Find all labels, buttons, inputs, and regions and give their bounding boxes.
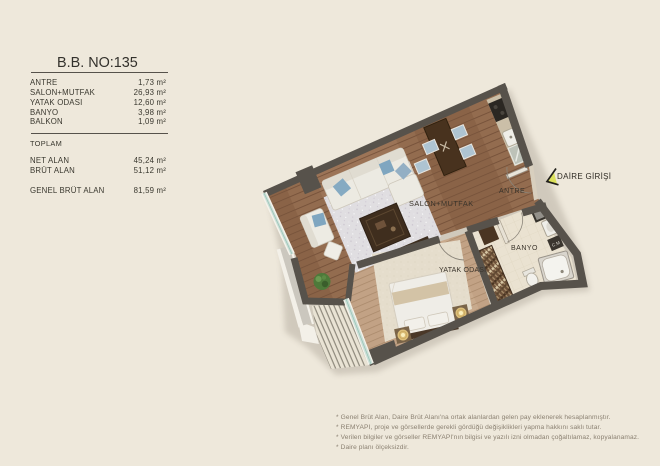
svg-text:DAİRE GİRİŞİ: DAİRE GİRİŞİ [557, 172, 611, 181]
svg-text:YATAK ODASI: YATAK ODASI [439, 267, 486, 274]
svg-text:ANTRE: ANTRE [499, 188, 525, 195]
svg-text:SALON+MUTFAK: SALON+MUTFAK [409, 199, 474, 208]
svg-text:BANYO: BANYO [511, 245, 538, 252]
